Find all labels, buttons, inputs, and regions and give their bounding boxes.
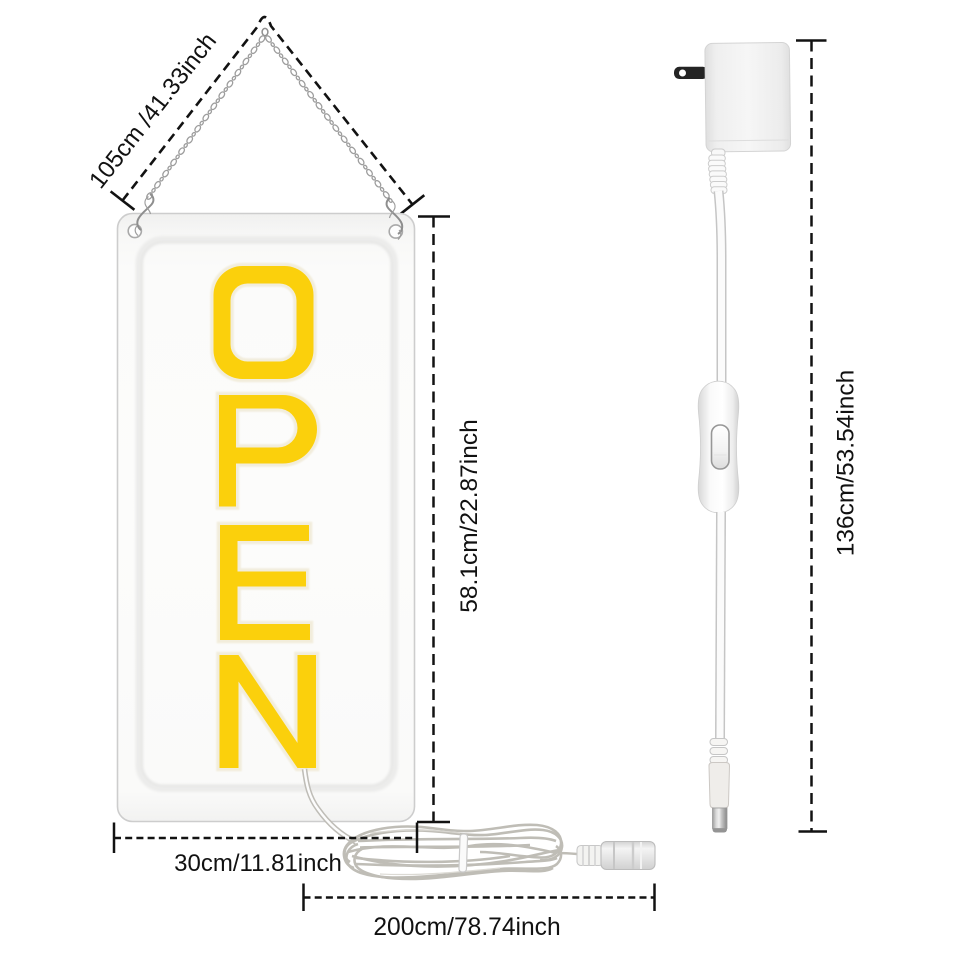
svg-text:200cm/78.74inch: 200cm/78.74inch [373, 914, 560, 941]
svg-text:58.1cm/22.87inch: 58.1cm/22.87inch [456, 419, 483, 612]
svg-text:30cm/11.81inch: 30cm/11.81inch [174, 850, 342, 877]
svg-text:136cm/53.54inch: 136cm/53.54inch [833, 370, 860, 557]
